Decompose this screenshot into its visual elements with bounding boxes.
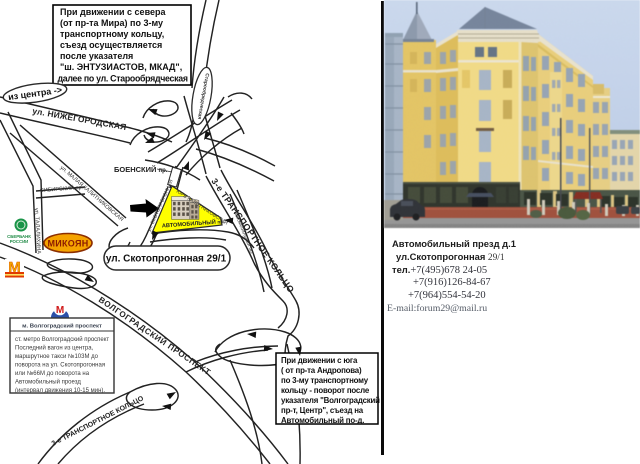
- svg-text:по 3-му транспортному: по 3-му транспортному: [281, 376, 369, 385]
- svg-text:Последний вагон из центра,: Последний вагон из центра,: [15, 345, 94, 352]
- svg-text:"ш. ЭНТУЗИАСТОВ, МКАД",: "ш. ЭНТУЗИАСТОВ, МКАД",: [60, 62, 182, 72]
- svg-text:после указателя: после указателя: [60, 51, 133, 61]
- svg-text:пр-т, Центр", съезд на: пр-т, Центр", съезд на: [281, 406, 364, 415]
- svg-text:кольцу - поворот после: кольцу - поворот после: [281, 386, 370, 395]
- svg-text:(интервал движения 10-15 мин).: (интервал движения 10-15 мин).: [15, 388, 105, 394]
- svg-text:Автомобильный проезд: Автомобильный проезд: [15, 379, 81, 386]
- svg-text:далее по ул. Старообрядческая: далее по ул. Старообрядческая: [58, 73, 188, 83]
- svg-text:указателя "Волгоградский: указателя "Волгоградский: [281, 396, 380, 405]
- svg-text:маршрутное такси №103М до: маршрутное такси №103М до: [15, 353, 99, 360]
- svg-text:ул. НИЖЕГОРОДСКАЯ: ул. НИЖЕГОРОДСКАЯ: [32, 106, 128, 132]
- svg-text:3-е ТРАНСПОРТНОЕ КОЛЬЦО: 3-е ТРАНСПОРТНОЕ КОЛЬЦО: [209, 176, 296, 294]
- svg-text:или №66М до поворота на: или №66М до поворота на: [15, 370, 90, 377]
- svg-text:транспортному кольцу,: транспортному кольцу,: [60, 29, 164, 39]
- svg-text:3-е ТРАНСПОРТНОЕ КОЛЬЦО: 3-е ТРАНСПОРТНОЕ КОЛЬЦО: [51, 395, 146, 448]
- svg-text:ст. метро Волгоградский проспе: ст. метро Волгоградский проспект: [15, 336, 109, 343]
- svg-text:При движении с юга: При движении с юга: [281, 356, 358, 365]
- svg-text:При движении с севера: При движении с севера: [60, 7, 166, 17]
- svg-text:Автомобильный по-д.: Автомобильный по-д.: [281, 416, 364, 425]
- svg-text:М: М: [56, 305, 64, 316]
- svg-text:( от пр-та Андропова): ( от пр-та Андропова): [281, 366, 362, 375]
- svg-text:съезд осуществляется: съезд осуществляется: [60, 40, 162, 50]
- svg-text:РОССИИ: РОССИИ: [10, 239, 29, 244]
- svg-text:м. Волгоградский проспект: м. Волгоградский проспект: [22, 323, 102, 330]
- svg-text:ул. ТАЛАЛИХИНА: ул. ТАЛАЛИХИНА: [33, 208, 41, 255]
- svg-text:поворота на ул. Скотопрогонная: поворота на ул. Скотопрогонная: [15, 363, 105, 369]
- svg-text:СИБИРСКИЙ пр.: СИБИРСКИЙ пр.: [40, 183, 84, 194]
- svg-text:(от пр-та Мира) по 3-му: (от пр-та Мира) по 3-му: [60, 18, 163, 28]
- svg-text:МИКОЯН: МИКОЯН: [47, 239, 88, 249]
- svg-text:ул. Скотопрогонная 29/1: ул. Скотопрогонная 29/1: [106, 254, 227, 265]
